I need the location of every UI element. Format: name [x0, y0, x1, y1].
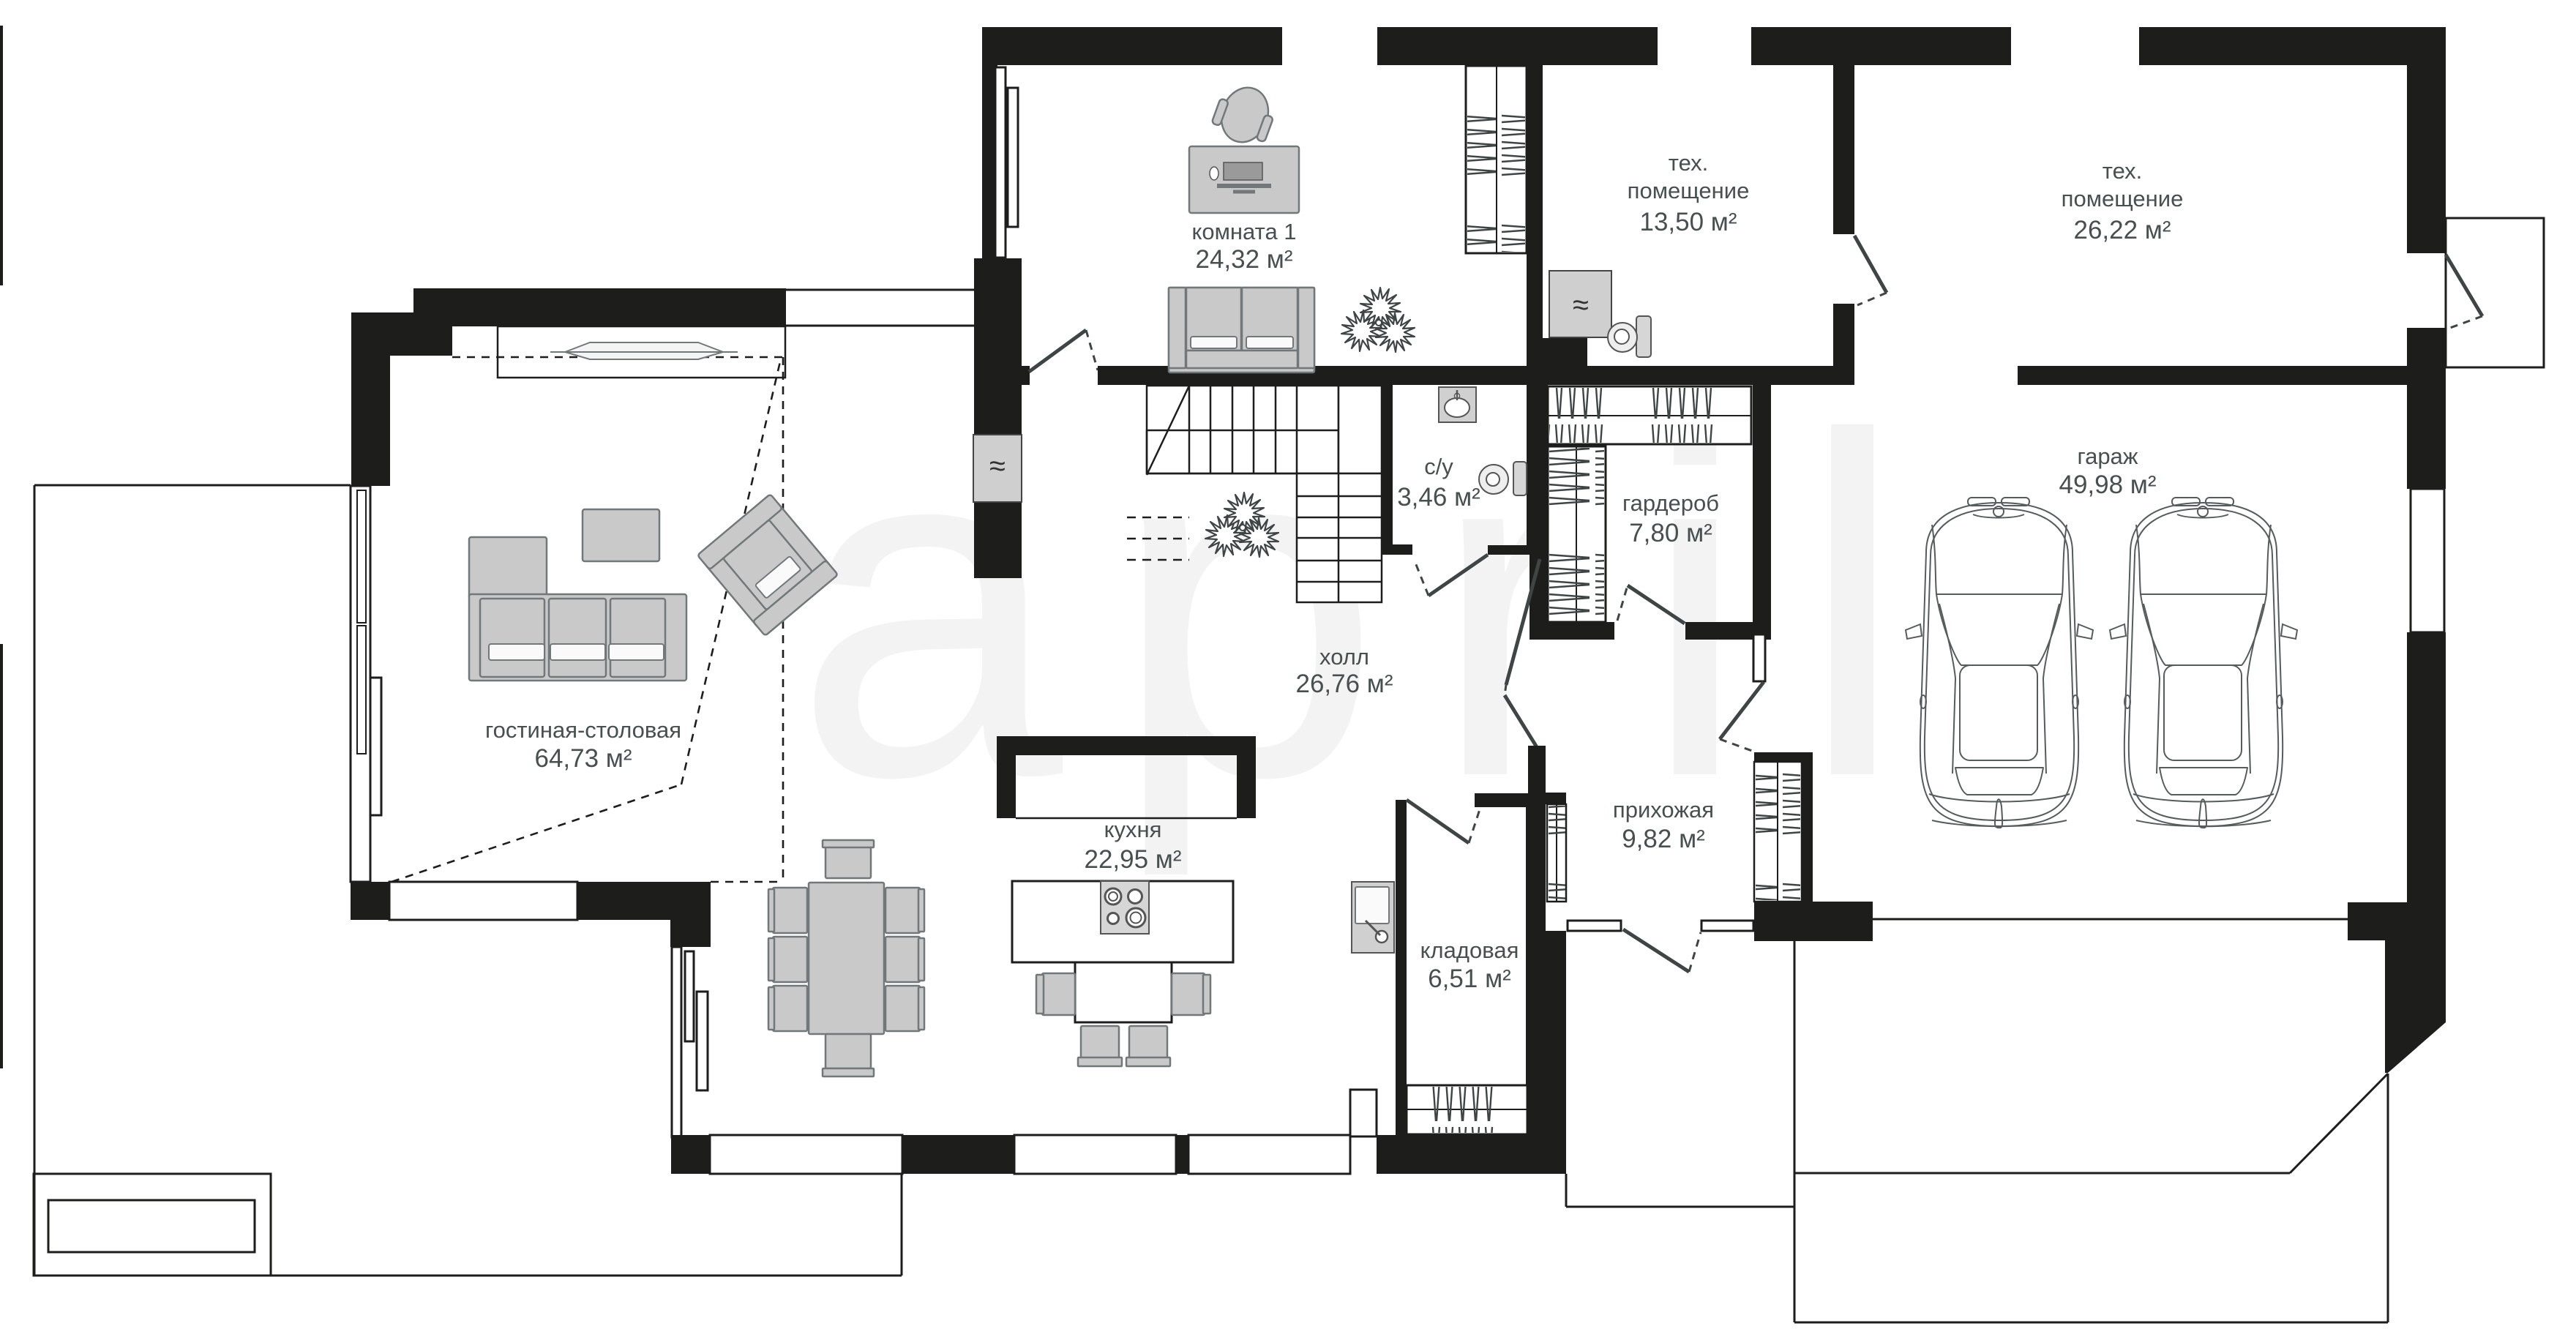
svg-text:тех.: тех.: [1669, 150, 1709, 176]
svg-text:гараж: гараж: [2077, 443, 2138, 469]
svg-text:≈: ≈: [989, 450, 1006, 482]
svg-text:≈: ≈: [1573, 289, 1589, 321]
svg-text:кладовая: кладовая: [1420, 937, 1519, 963]
svg-text:помещение: помещение: [1628, 178, 1750, 203]
svg-text:тех.: тех.: [2103, 158, 2143, 184]
svg-text:22,95 м²: 22,95 м²: [1084, 845, 1181, 874]
svg-text:гардероб: гардероб: [1622, 490, 1719, 516]
svg-text:6,51 м²: 6,51 м²: [1428, 965, 1511, 993]
svg-text:26,76 м²: 26,76 м²: [1295, 670, 1393, 698]
svg-text:холл: холл: [1319, 644, 1369, 670]
svg-text:прихожая: прихожая: [1613, 797, 1714, 823]
svg-text:7,80 м²: 7,80 м²: [1629, 519, 1712, 547]
svg-text:комната 1: комната 1: [1191, 219, 1296, 244]
svg-text:помещение: помещение: [2062, 186, 2184, 211]
svg-text:с/у: с/у: [1424, 454, 1453, 479]
svg-text:64,73 м²: 64,73 м²: [534, 744, 632, 773]
svg-text:3,46 м²: 3,46 м²: [1397, 483, 1480, 512]
svg-text:26,22 м²: 26,22 м²: [2073, 216, 2171, 244]
svg-text:кухня: кухня: [1104, 817, 1162, 842]
svg-text:гостиная-столовая: гостиная-столовая: [485, 717, 681, 743]
svg-text:24,32 м²: 24,32 м²: [1195, 245, 1292, 274]
svg-text:9,82 м²: 9,82 м²: [1622, 825, 1705, 853]
svg-text:49,98 м²: 49,98 м²: [2059, 471, 2156, 499]
svg-text:13,50 м²: 13,50 м²: [1639, 208, 1737, 236]
